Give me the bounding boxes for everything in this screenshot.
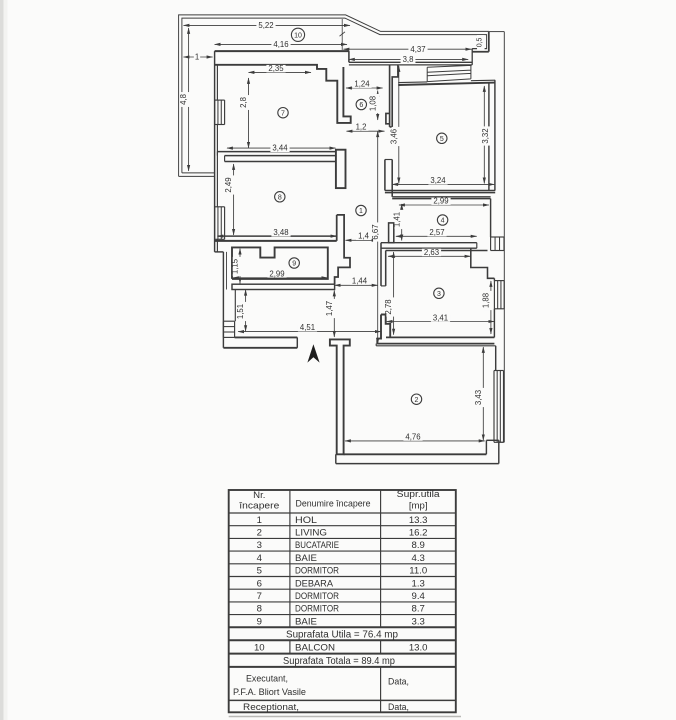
svg-text:1.3: 1.3 bbox=[412, 578, 425, 589]
svg-text:încapere: încapere bbox=[238, 501, 279, 512]
svg-text:4,8: 4,8 bbox=[179, 94, 188, 105]
svg-text:3,48: 3,48 bbox=[273, 228, 288, 237]
svg-text:2,99: 2,99 bbox=[269, 269, 284, 278]
svg-text:5: 5 bbox=[257, 566, 262, 577]
svg-text:Data,: Data, bbox=[388, 677, 409, 688]
svg-text:2,57: 2,57 bbox=[429, 228, 444, 237]
svg-text:BALCON: BALCON bbox=[295, 642, 335, 653]
svg-text:4,76: 4,76 bbox=[405, 433, 420, 442]
svg-text:10: 10 bbox=[294, 32, 302, 39]
svg-text:Data,: Data, bbox=[388, 702, 409, 713]
svg-text:3.3: 3.3 bbox=[412, 616, 425, 627]
svg-text:2,49: 2,49 bbox=[224, 177, 233, 192]
svg-text:Executant,: Executant, bbox=[246, 674, 288, 685]
svg-text:Nr.: Nr. bbox=[253, 490, 265, 501]
svg-text:6: 6 bbox=[359, 102, 363, 109]
svg-text:5,22: 5,22 bbox=[258, 21, 273, 30]
svg-text:3: 3 bbox=[257, 540, 262, 551]
svg-text:1: 1 bbox=[195, 53, 199, 62]
svg-text:6,67: 6,67 bbox=[371, 224, 380, 239]
svg-text:8.7: 8.7 bbox=[412, 604, 425, 615]
svg-text:8.9: 8.9 bbox=[412, 540, 425, 551]
svg-text:9: 9 bbox=[257, 616, 262, 627]
svg-text:8: 8 bbox=[278, 194, 282, 201]
svg-text:3,43: 3,43 bbox=[474, 390, 483, 405]
svg-text:1: 1 bbox=[257, 515, 262, 526]
svg-text:1,47: 1,47 bbox=[325, 301, 334, 316]
svg-text:[mp]: [mp] bbox=[409, 501, 428, 512]
svg-text:3,44: 3,44 bbox=[272, 144, 288, 153]
svg-text:4,37: 4,37 bbox=[410, 45, 425, 54]
svg-text:Supr.utila: Supr.utila bbox=[397, 489, 441, 500]
svg-text:1,41: 1,41 bbox=[392, 212, 401, 227]
svg-text:Suprafata Utila = 76.4 mp: Suprafata Utila = 76.4 mp bbox=[286, 630, 399, 641]
svg-text:1,4: 1,4 bbox=[358, 232, 370, 241]
svg-text:1: 1 bbox=[359, 208, 363, 215]
svg-text:4,16: 4,16 bbox=[273, 40, 288, 49]
svg-text:DEBARA: DEBARA bbox=[295, 578, 334, 589]
svg-text:5: 5 bbox=[440, 136, 444, 143]
svg-text:16.2: 16.2 bbox=[409, 528, 428, 539]
svg-text:11.0: 11.0 bbox=[409, 566, 427, 577]
svg-text:6: 6 bbox=[257, 578, 262, 589]
svg-text:1,15: 1,15 bbox=[231, 258, 240, 274]
svg-text:4: 4 bbox=[257, 553, 263, 564]
svg-text:10: 10 bbox=[254, 642, 265, 653]
svg-text:1,88: 1,88 bbox=[482, 293, 491, 308]
svg-text:3,24: 3,24 bbox=[430, 176, 446, 185]
svg-text:9.4: 9.4 bbox=[412, 591, 426, 602]
svg-text:4: 4 bbox=[441, 218, 445, 225]
svg-text:2: 2 bbox=[415, 397, 419, 404]
svg-text:1,08: 1,08 bbox=[368, 96, 377, 111]
svg-text:Suprafata Totala = 89.4 mp: Suprafata Totala = 89.4 mp bbox=[283, 656, 396, 667]
svg-text:DORMITOR: DORMITOR bbox=[295, 591, 339, 602]
svg-text:BAIE: BAIE bbox=[295, 553, 317, 564]
svg-text:3: 3 bbox=[437, 291, 441, 298]
svg-text:Denumire încapere: Denumire încapere bbox=[296, 499, 371, 510]
svg-text:3,32: 3,32 bbox=[481, 128, 490, 143]
svg-text:3,46: 3,46 bbox=[389, 129, 398, 144]
svg-text:1,24: 1,24 bbox=[354, 80, 370, 89]
svg-text:1,44: 1,44 bbox=[352, 276, 368, 285]
svg-text:2,35: 2,35 bbox=[268, 64, 284, 73]
svg-text:DORMITOR: DORMITOR bbox=[295, 604, 339, 615]
svg-text:4,51: 4,51 bbox=[300, 323, 315, 332]
svg-text:1,51: 1,51 bbox=[236, 304, 245, 319]
svg-text:BAIE: BAIE bbox=[295, 616, 317, 627]
svg-text:3,8: 3,8 bbox=[403, 55, 414, 64]
svg-text:0,5: 0,5 bbox=[476, 38, 483, 48]
svg-text:HOL: HOL bbox=[295, 515, 318, 526]
svg-text:1,2: 1,2 bbox=[356, 123, 367, 132]
svg-text:2,8: 2,8 bbox=[239, 97, 248, 108]
svg-text:DORMITOR: DORMITOR bbox=[295, 566, 339, 577]
svg-text:BUCATARIE: BUCATARIE bbox=[295, 540, 339, 551]
svg-text:2,63: 2,63 bbox=[424, 248, 439, 257]
svg-text:2: 2 bbox=[257, 528, 262, 539]
svg-text:3,41: 3,41 bbox=[433, 314, 448, 323]
svg-text:Receptionat,: Receptionat, bbox=[243, 702, 299, 713]
svg-text:7: 7 bbox=[281, 110, 285, 117]
svg-text:9: 9 bbox=[292, 261, 296, 268]
svg-text:LIVING: LIVING bbox=[295, 528, 327, 539]
svg-text:2,78: 2,78 bbox=[384, 299, 393, 314]
svg-text:P.F.A. Bliort Vasile: P.F.A. Bliort Vasile bbox=[233, 687, 306, 698]
svg-text:2,99: 2,99 bbox=[433, 197, 448, 206]
svg-text:13.3: 13.3 bbox=[409, 515, 428, 526]
svg-text:13.0: 13.0 bbox=[409, 642, 428, 653]
svg-text:7: 7 bbox=[257, 591, 262, 602]
svg-text:8: 8 bbox=[257, 604, 262, 615]
svg-text:4.3: 4.3 bbox=[412, 553, 425, 564]
